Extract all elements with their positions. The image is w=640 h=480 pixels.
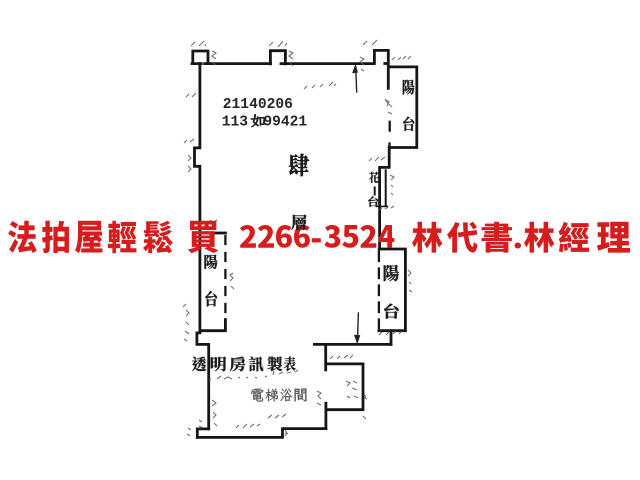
svg-text:21140206: 21140206 (223, 97, 293, 113)
svg-text:113: 113 (222, 114, 249, 130)
svg-text:99421: 99421 (263, 114, 307, 130)
